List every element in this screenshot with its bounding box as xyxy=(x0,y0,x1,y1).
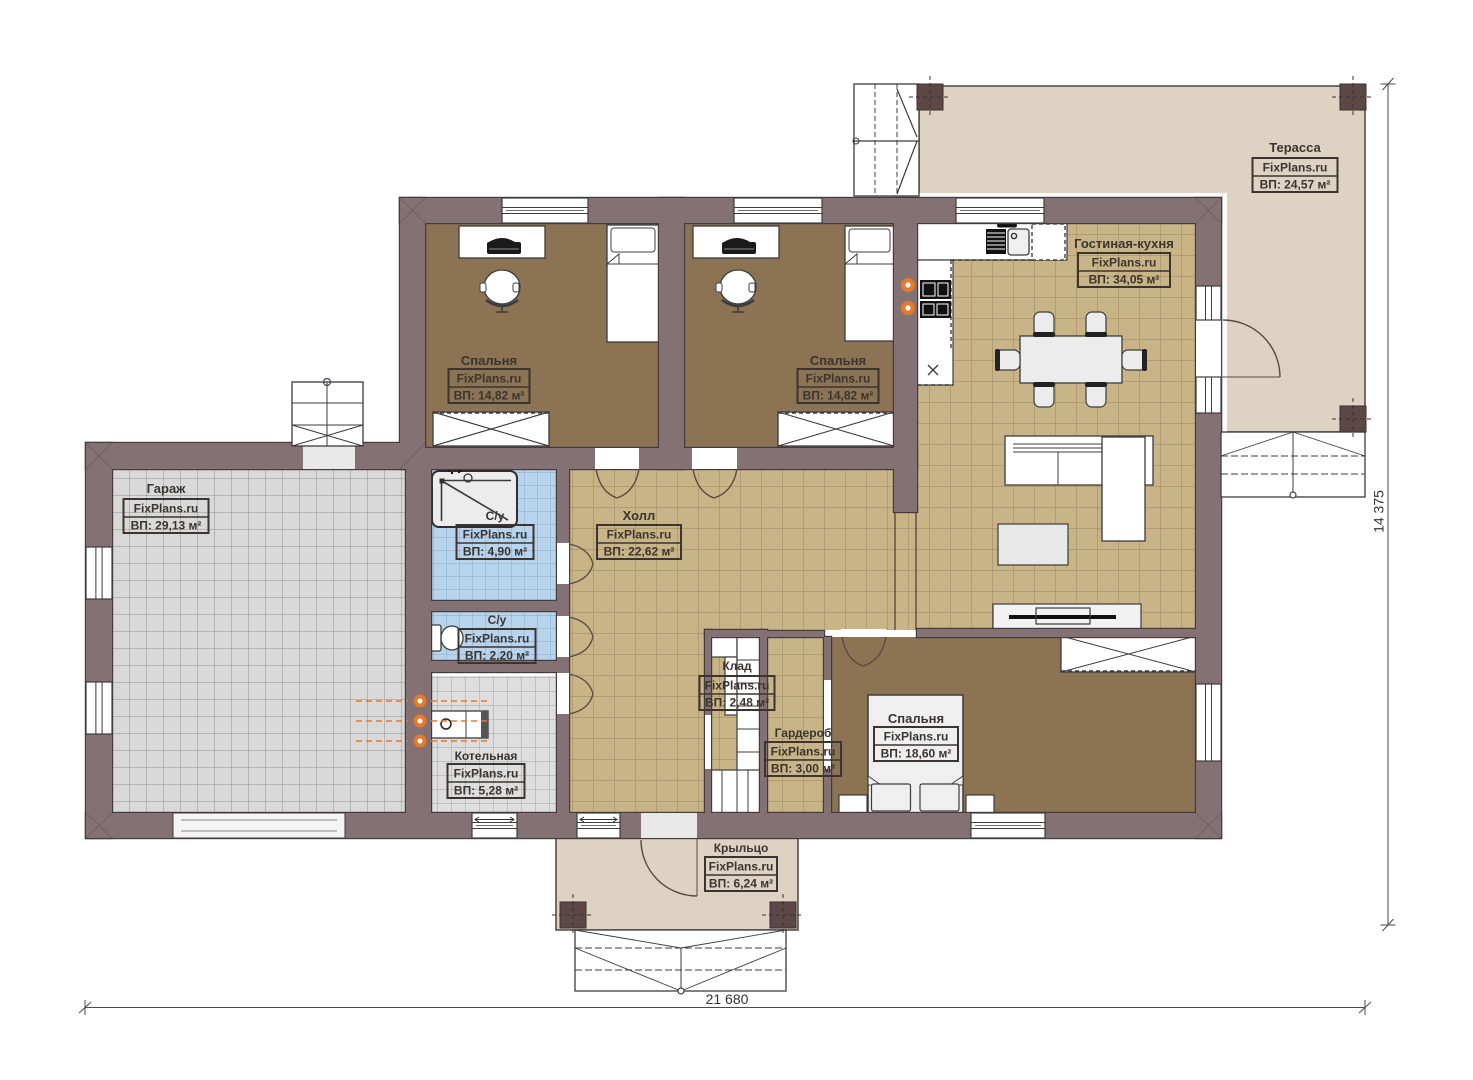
svg-text:Гардероб: Гардероб xyxy=(775,726,832,740)
svg-text:ВП: 29,13 м²: ВП: 29,13 м² xyxy=(131,519,202,533)
svg-text:ВП: 14,82 м²: ВП: 14,82 м² xyxy=(454,389,525,403)
svg-text:ВП: 5,28 м²: ВП: 5,28 м² xyxy=(454,784,518,798)
svg-text:ВП: 18,60 м²: ВП: 18,60 м² xyxy=(881,747,952,761)
svg-text:FixPlans.ru: FixPlans.ru xyxy=(884,730,949,744)
svg-text:Гостиная-кухня: Гостиная-кухня xyxy=(1074,236,1174,251)
svg-text:Гараж: Гараж xyxy=(147,481,187,496)
svg-text:ВП: 6,24 м²: ВП: 6,24 м² xyxy=(709,877,773,891)
svg-text:ВП: 4,90 м²: ВП: 4,90 м² xyxy=(463,545,527,559)
svg-text:FixPlans.ru: FixPlans.ru xyxy=(463,528,528,542)
svg-text:ВП: 2,20 м²: ВП: 2,20 м² xyxy=(465,649,529,663)
svg-text:FixPlans.ru: FixPlans.ru xyxy=(771,745,836,759)
svg-text:ВП: 22,62 м²: ВП: 22,62 м² xyxy=(604,545,675,559)
svg-text:ВП: 2,48 м²: ВП: 2,48 м² xyxy=(705,696,769,710)
svg-text:FixPlans.ru: FixPlans.ru xyxy=(709,860,774,874)
svg-text:С/у: С/у xyxy=(488,613,507,627)
svg-text:FixPlans.ru: FixPlans.ru xyxy=(454,767,519,781)
svg-text:FixPlans.ru: FixPlans.ru xyxy=(1263,161,1328,175)
svg-text:Котельная: Котельная xyxy=(455,749,518,763)
svg-text:Спальня: Спальня xyxy=(810,353,866,368)
svg-text:Клад: Клад xyxy=(722,659,752,673)
svg-text:14 375: 14 375 xyxy=(1371,490,1387,533)
svg-text:FixPlans.ru: FixPlans.ru xyxy=(457,372,522,386)
svg-text:Спальня: Спальня xyxy=(461,353,517,368)
svg-text:ВП: 14,82 м²: ВП: 14,82 м² xyxy=(803,389,874,403)
svg-text:FixPlans.ru: FixPlans.ru xyxy=(1092,256,1157,270)
svg-text:FixPlans.ru: FixPlans.ru xyxy=(806,372,871,386)
svg-text:Спальня: Спальня xyxy=(888,711,944,726)
svg-text:FixPlans.ru: FixPlans.ru xyxy=(465,632,530,646)
svg-text:FixPlans.ru: FixPlans.ru xyxy=(134,502,199,516)
svg-text:21 680: 21 680 xyxy=(706,991,749,1007)
svg-text:FixPlans.ru: FixPlans.ru xyxy=(705,679,770,693)
svg-text:Крыльцо: Крыльцо xyxy=(714,841,769,855)
svg-text:С/у: С/у xyxy=(486,509,505,523)
svg-text:ВП: 3,00 м²: ВП: 3,00 м² xyxy=(771,762,835,776)
svg-text:FixPlans.ru: FixPlans.ru xyxy=(607,528,672,542)
svg-text:ВП: 24,57 м²: ВП: 24,57 м² xyxy=(1260,178,1331,192)
svg-text:ВП: 34,05 м²: ВП: 34,05 м² xyxy=(1089,273,1160,287)
svg-text:Терасса: Терасса xyxy=(1269,140,1321,155)
svg-text:Холл: Холл xyxy=(623,508,656,523)
